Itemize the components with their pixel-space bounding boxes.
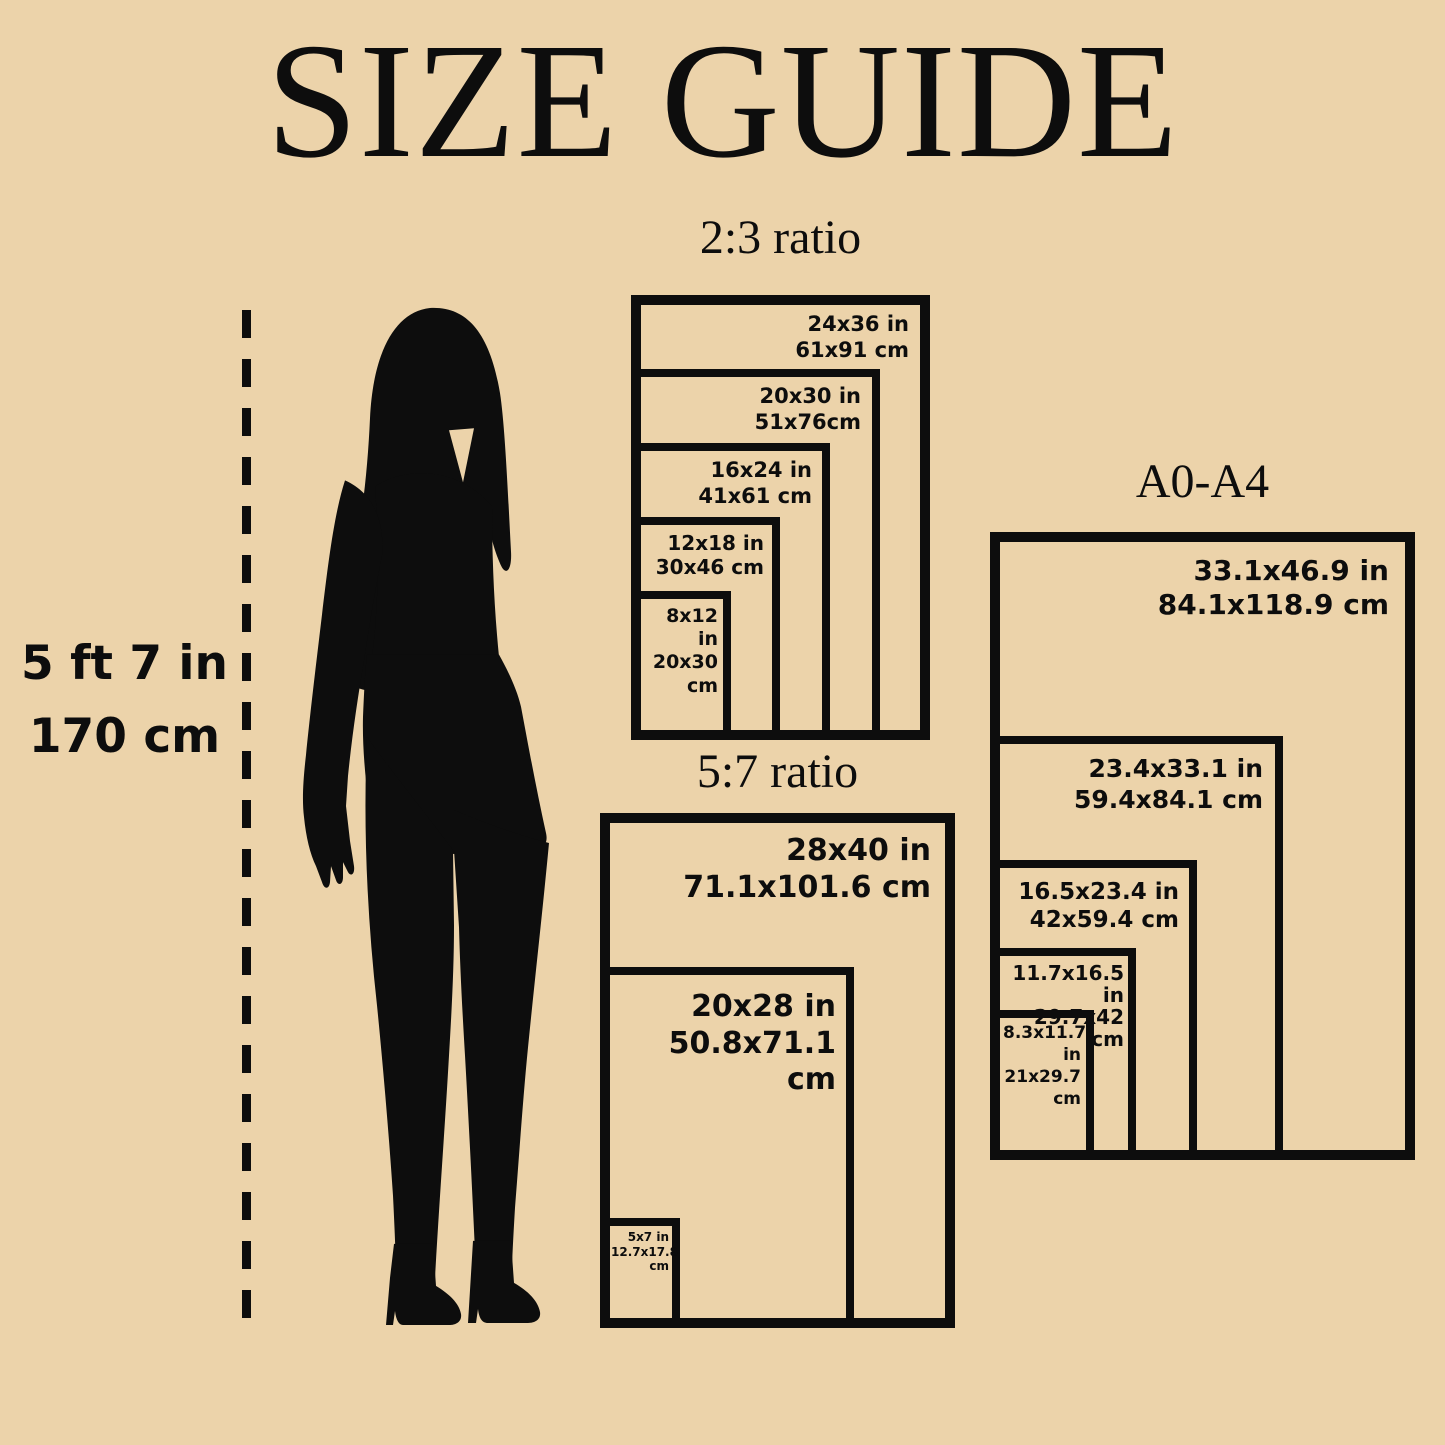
size-inches: 12x18 in (647, 531, 764, 555)
group-heading-5-7: 5:7 ratio (600, 748, 955, 796)
woman-silhouette-icon (283, 304, 583, 1332)
size-inches: 16.5x23.4 in (1008, 878, 1179, 906)
size-cm: 12.7x17.8 cm (611, 1245, 669, 1274)
size-inches: 33.1x46.9 in (1016, 554, 1389, 588)
size-inches: 5x7 in (611, 1230, 669, 1245)
size-cm: 59.4x84.1 cm (1010, 785, 1263, 816)
size-inches: 23.4x33.1 in (1010, 754, 1263, 785)
height-label-feet: 5 ft 7 in (17, 628, 232, 701)
size-cm: 20x30 cm (644, 651, 718, 697)
page-title: SIZE GUIDE (0, 18, 1445, 183)
size-inches: 28x40 in (624, 833, 931, 870)
size-cm: 61x91 cm (652, 338, 909, 364)
size-inches: 11.7x16.5 in (1002, 962, 1124, 1006)
size-cm: 41x61 cm (649, 484, 812, 510)
size-cm: 71.1x101.6 cm (624, 870, 931, 907)
size-box-8x12: 8x12 in 20x30 cm (631, 591, 731, 740)
size-inches: 8.3x11.7 in (1003, 1022, 1081, 1066)
poster-canvas: SIZE GUIDE 5 ft 7 in 170 cm 2:3 (0, 0, 1445, 1445)
size-inches: 8x12 in (644, 605, 718, 651)
size-cm: 84.1x118.9 cm (1016, 588, 1389, 622)
size-inches: 20x30 in (650, 384, 861, 410)
size-inches: 24x36 in (652, 312, 909, 338)
size-cm: 30x46 cm (647, 555, 764, 579)
size-cm: 50.8x71.1 cm (618, 1026, 836, 1099)
size-cm: 42x59.4 cm (1008, 906, 1179, 934)
size-cm: 51x76cm (650, 410, 861, 436)
size-inches: 16x24 in (649, 458, 812, 484)
size-cm: 21x29.7 cm (1003, 1066, 1081, 1110)
size-inches: 20x28 in (618, 989, 836, 1026)
height-label-cm: 170 cm (17, 701, 232, 774)
height-dashed-line (242, 310, 251, 1332)
group-heading-a0-a4: A0-A4 (990, 458, 1415, 506)
size-box-a4: 8.3x11.7 in 21x29.7 cm (990, 1010, 1094, 1160)
group-heading-2-3: 2:3 ratio (631, 214, 930, 262)
height-label: 5 ft 7 in 170 cm (17, 628, 232, 774)
size-box-5x7: 5x7 in 12.7x17.8 cm (600, 1218, 680, 1328)
